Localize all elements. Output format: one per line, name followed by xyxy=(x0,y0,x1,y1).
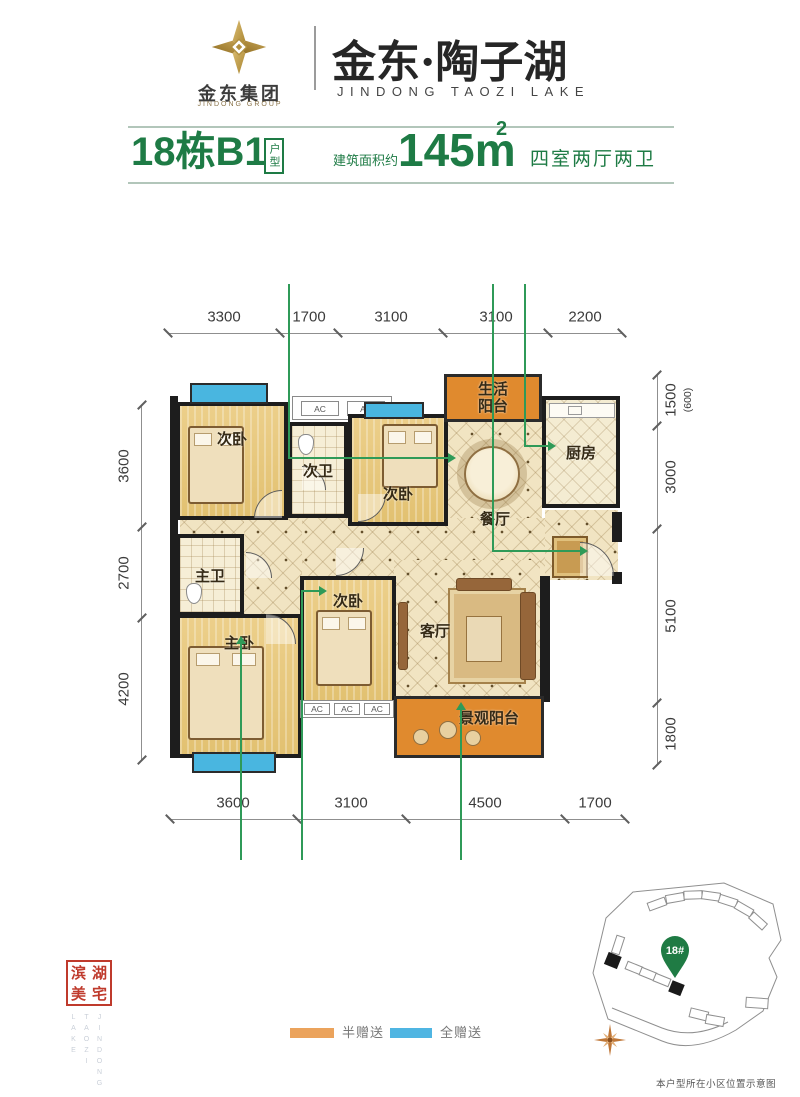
dim-label: 2200 xyxy=(568,309,601,326)
entry-wall-top xyxy=(612,512,622,542)
dim-line-right xyxy=(657,375,658,765)
legend-label: 全赠送 xyxy=(440,1022,482,1041)
dim-label: 5100 xyxy=(663,599,680,632)
sofa-icon xyxy=(456,578,512,591)
tv-cabinet-icon xyxy=(398,602,408,670)
leader-line xyxy=(524,284,526,447)
bed-icon xyxy=(188,646,264,740)
dim-label: 2700 xyxy=(116,556,133,589)
ac-unit: AC xyxy=(301,401,339,416)
ac-label: AC xyxy=(311,704,323,714)
seal-char: 滨 xyxy=(68,962,89,983)
area-prefix: 建筑面积约 xyxy=(333,150,398,169)
area-superscript: 2 xyxy=(496,118,507,141)
dim-tick xyxy=(137,613,147,623)
seal-char: 美 xyxy=(68,983,89,1004)
ac-label: AC xyxy=(341,704,353,714)
jindong-logo-icon xyxy=(210,18,268,76)
leader-arrow xyxy=(580,546,588,556)
kitchen-counter-icon xyxy=(549,403,615,418)
leader-line xyxy=(288,457,448,459)
ac-shaft-bottom: AC AC AC xyxy=(300,700,394,718)
leader-line xyxy=(524,445,548,447)
dim-tick xyxy=(137,522,147,532)
ac-unit: AC xyxy=(334,703,360,715)
seal-char: 宅 xyxy=(89,983,110,1004)
unit-type-tag: 户型 xyxy=(264,138,284,174)
balcony-full-gift-top-mid xyxy=(364,402,424,419)
title-rule-bottom xyxy=(128,182,674,184)
leader-line xyxy=(301,590,319,592)
ac-unit: AC xyxy=(304,703,330,715)
site-pin-label: 18# xyxy=(666,945,684,957)
project-name: 金东·陶子湖 xyxy=(332,26,567,90)
header-divider xyxy=(314,26,316,90)
dim-label: 1800 xyxy=(663,717,680,750)
dim-label: 3300 xyxy=(207,309,240,326)
dim-label: 3100 xyxy=(374,309,407,326)
dining-label: 餐厅 xyxy=(480,508,510,529)
dim-line-top xyxy=(168,333,622,334)
kitchen-sink-icon xyxy=(568,406,582,415)
dim-label: 1700 xyxy=(578,795,611,812)
dim-line-left xyxy=(141,405,142,760)
ac-unit: AC xyxy=(364,703,390,715)
room-bath-secondary: 次卫 xyxy=(288,422,348,518)
balcony-view: 景观阳台 xyxy=(394,696,544,758)
seal-en-line: JINDONG xyxy=(96,1014,103,1091)
unit-title: 18栋B1 xyxy=(131,132,267,172)
dim-label: 3100 xyxy=(479,309,512,326)
toilet-icon xyxy=(298,434,314,455)
dim-label: 3600 xyxy=(216,795,249,812)
room-label: 次卧 xyxy=(383,483,413,504)
room-label: 主卫 xyxy=(195,565,225,586)
compass-icon xyxy=(594,1024,626,1056)
brand-seal: 滨 湖 美 宅 xyxy=(66,960,112,1006)
bed-icon xyxy=(382,424,438,488)
leader-arrow xyxy=(236,636,246,644)
room-label: 次卧 xyxy=(333,590,363,611)
leader-line xyxy=(460,710,462,860)
room-bath-master: 主卫 xyxy=(176,534,244,616)
legend-swatch-full-gift xyxy=(390,1028,432,1038)
ac-label: AC xyxy=(371,704,383,714)
room-kitchen: 厨房 xyxy=(542,396,620,508)
group-name-en: JINDONG GROUP xyxy=(184,101,296,108)
site-map: 18# xyxy=(578,878,796,1078)
stool-icon xyxy=(439,721,457,739)
dim-label: 1700 xyxy=(292,309,325,326)
bed-icon xyxy=(316,610,372,686)
leader-arrow xyxy=(319,586,327,596)
sofa-icon xyxy=(520,592,536,680)
dim-tick xyxy=(137,400,147,410)
seal-en-line: TAOZI xyxy=(83,1014,90,1069)
dim-line-bottom xyxy=(170,819,625,820)
legend-label: 半赠送 xyxy=(342,1022,384,1041)
toilet-icon xyxy=(186,583,202,604)
leader-line xyxy=(288,284,290,459)
leader-arrow xyxy=(456,702,466,710)
room-label: 次卧 xyxy=(217,428,247,449)
stool-icon xyxy=(413,729,429,745)
floorplan-flyer: 金东集团 JINDONG GROUP 金东·陶子湖 JINDONG TAOZI … xyxy=(0,0,800,1097)
living-label: 客厅 xyxy=(420,620,450,641)
room-label: 景观阳台 xyxy=(459,707,519,728)
dim-label: 3000 xyxy=(663,460,680,493)
room-config: 四室两厅两卫 xyxy=(530,144,656,171)
room-label: 次卫 xyxy=(303,460,333,481)
stool-icon xyxy=(465,730,481,746)
leader-arrow xyxy=(548,441,556,451)
leader-line xyxy=(492,550,580,552)
room-label: 厨房 xyxy=(566,442,596,463)
dim-tick xyxy=(137,755,147,765)
site-map-caption: 本户型所在小区位置示意图 xyxy=(634,1076,798,1090)
room-bedroom-mid: 次卧 xyxy=(300,576,396,704)
ac-label: AC xyxy=(314,404,326,414)
dim-label: 4500 xyxy=(468,795,501,812)
dim-label: 1500 xyxy=(663,383,680,416)
site-pin: 18# xyxy=(661,936,689,978)
balcony-full-gift-bottom xyxy=(192,752,276,773)
seal-en-line: LAKE xyxy=(70,1014,77,1058)
dim-label: 3600 xyxy=(116,449,133,482)
leader-line xyxy=(301,590,303,860)
project-name-en: JINDONG TAOZI LAKE xyxy=(337,84,590,99)
dim-label: 4200 xyxy=(116,672,133,705)
leader-line xyxy=(240,644,242,860)
coffee-table-icon xyxy=(466,616,502,662)
dim-label: 3100 xyxy=(334,795,367,812)
balcony-full-gift-top-left xyxy=(190,383,268,404)
dim-sublabel: (600) xyxy=(682,388,694,413)
outer-wall-living-right xyxy=(540,576,550,702)
seal-char: 湖 xyxy=(89,962,110,983)
legend-swatch-half-gift xyxy=(290,1028,334,1038)
leader-line xyxy=(492,284,494,552)
leader-arrow xyxy=(448,453,456,463)
